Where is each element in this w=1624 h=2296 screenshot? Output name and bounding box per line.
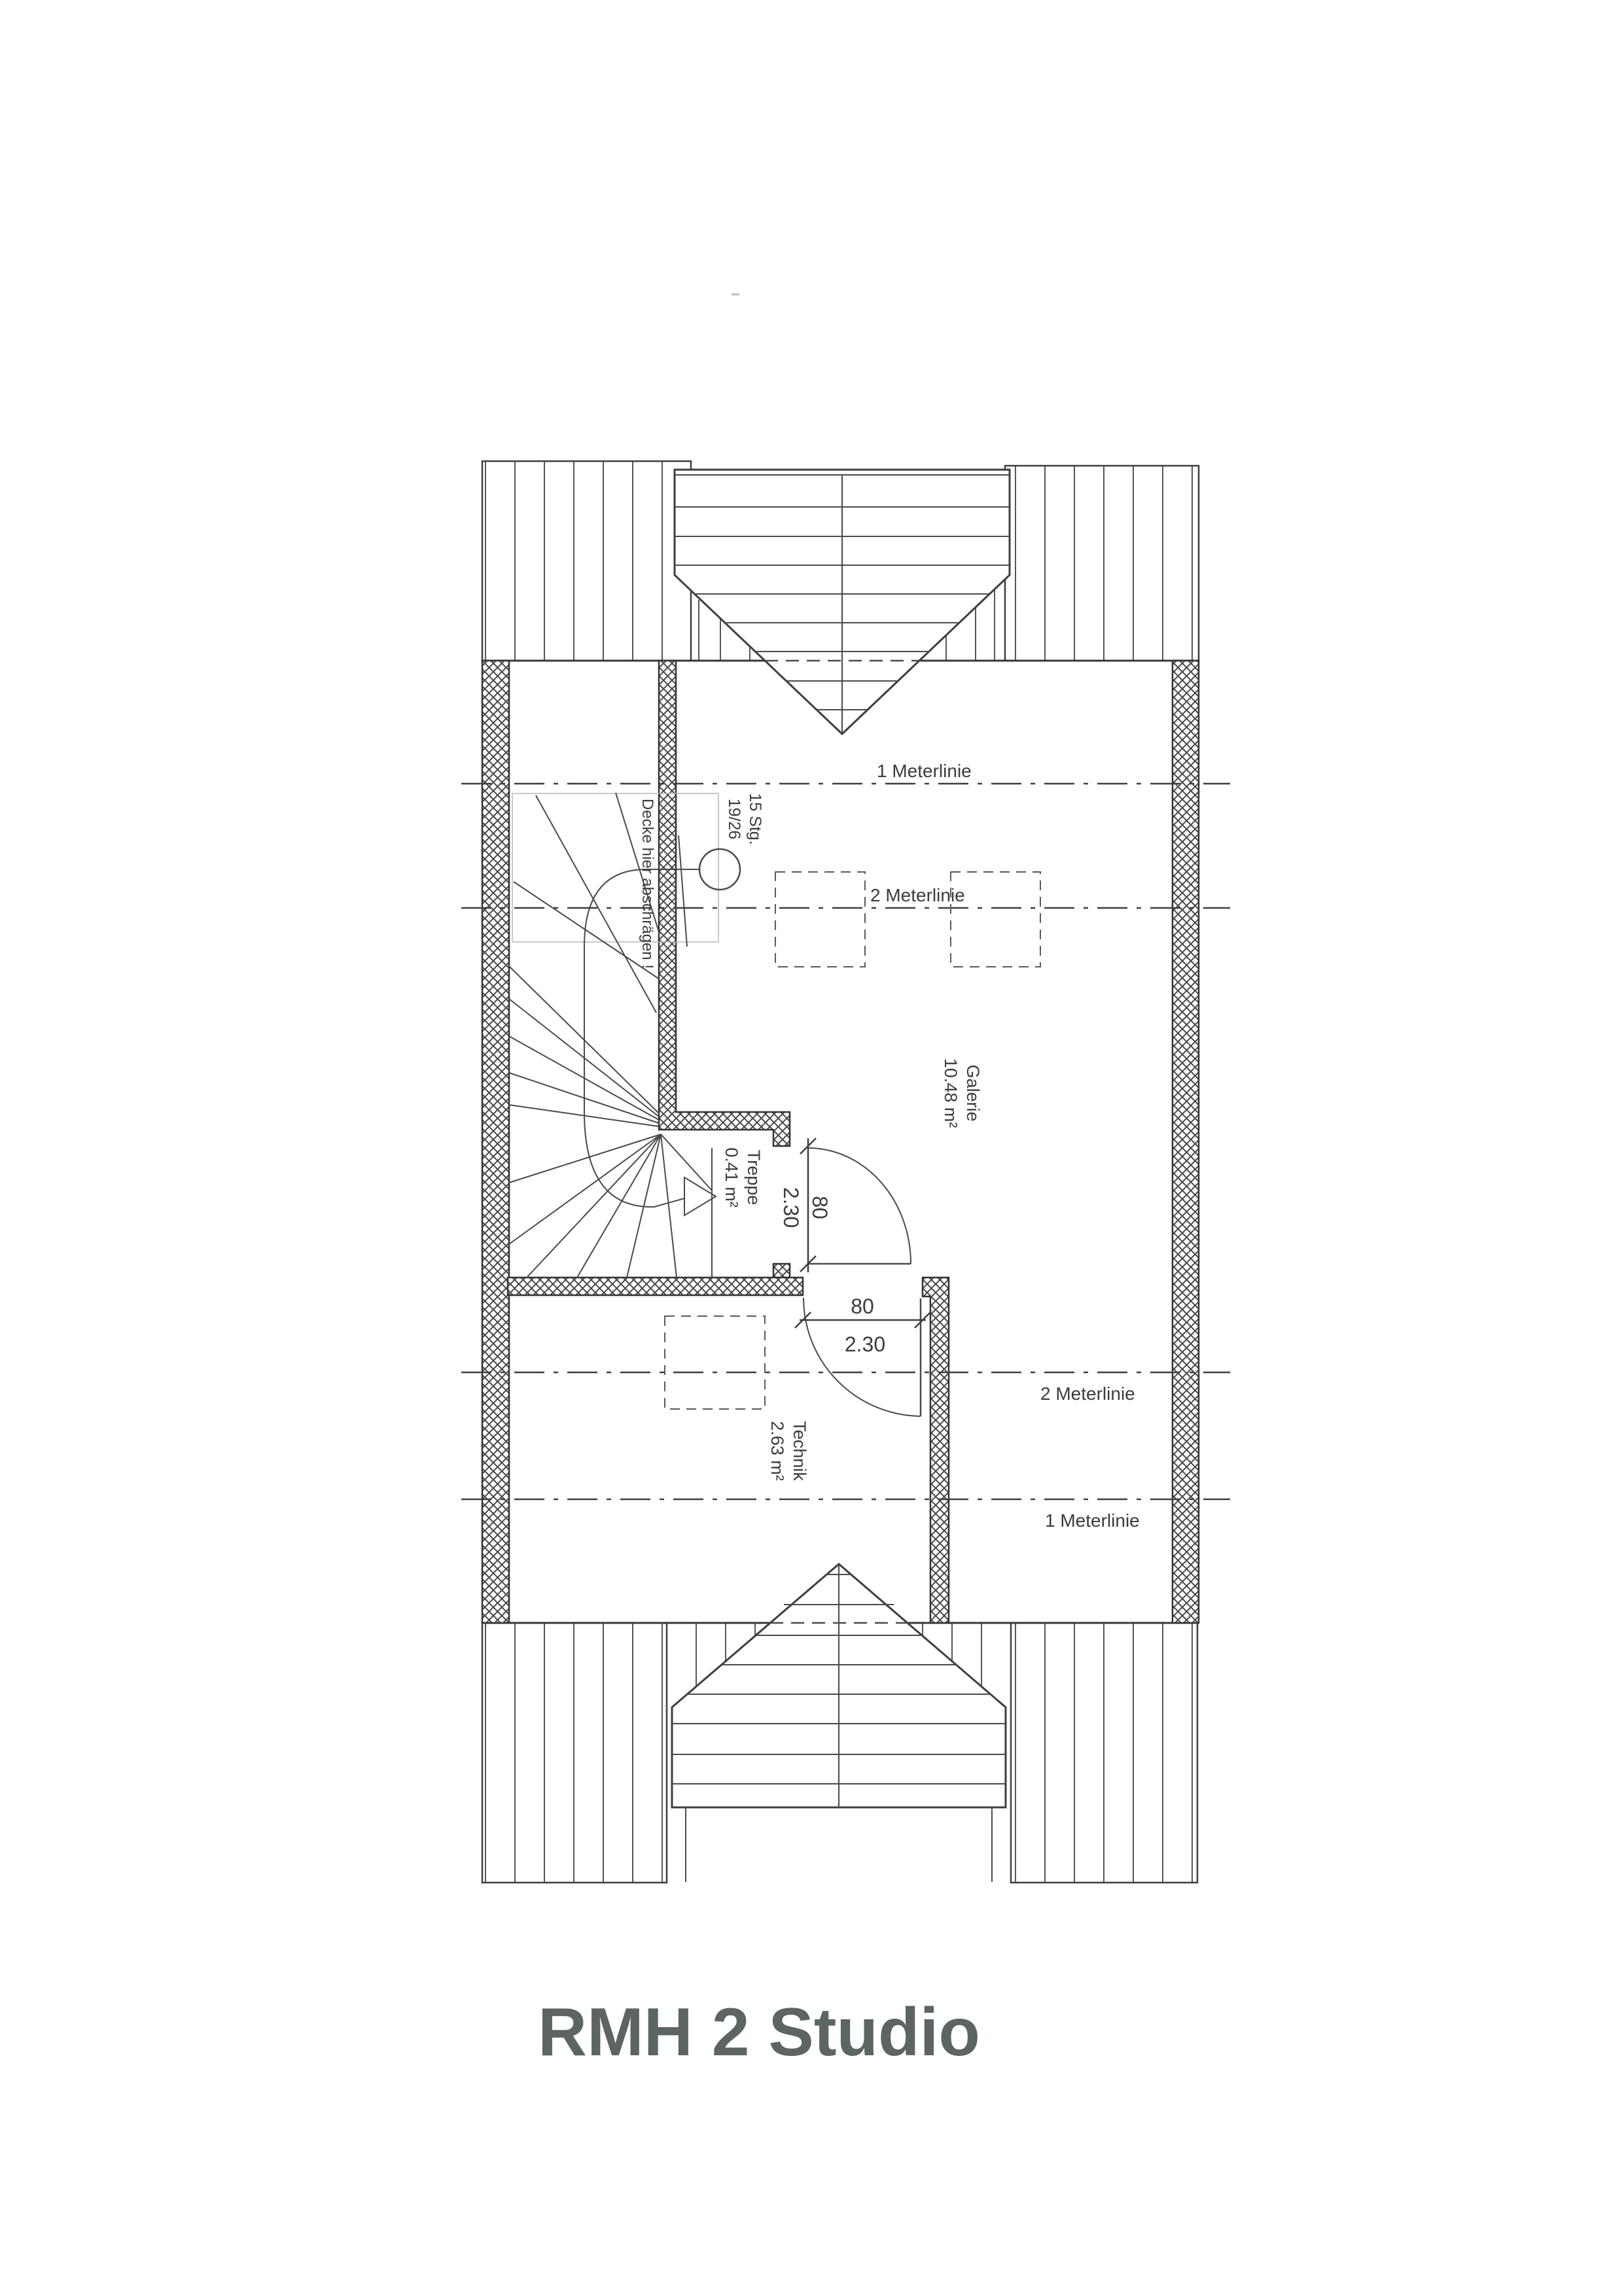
- walking-line-arrow: [684, 1177, 716, 1215]
- stair-opening-outline: [512, 793, 718, 942]
- wall-exterior-left: [482, 661, 509, 1623]
- skylight-galerie-left: [775, 872, 865, 967]
- door-upper-width: 80: [808, 1196, 832, 1219]
- skylight-technik: [665, 1316, 765, 1409]
- page-title: RMH 2 Studio: [538, 1994, 980, 2070]
- stair-treads: [509, 793, 712, 1278]
- stair-spec: 15 Stg. 19/26: [725, 793, 764, 844]
- dormer-bottom-lines: [672, 1564, 1006, 1882]
- door-lower-height: 2.30: [845, 1332, 885, 1356]
- wall-door-jamb-stub: [773, 1264, 790, 1278]
- dormer-top: [675, 470, 1010, 734]
- walking-line-start-circle: [699, 849, 740, 890]
- technik-area: 2.63 m²: [768, 1421, 787, 1481]
- treppe-area: 0.41 m²: [722, 1147, 741, 1208]
- door-upper-height: 2.30: [779, 1187, 803, 1228]
- stair-steps: 15 Stg.: [746, 793, 764, 844]
- stair-rise-run: 19/26: [725, 799, 743, 840]
- door-upper-dimension-text: 80 2.30: [779, 1187, 832, 1228]
- meterline-1-bottom-label: 1 Meterlinie: [1045, 1510, 1140, 1531]
- door-upper: 80 2.30: [779, 1138, 911, 1272]
- room-label-treppe: Treppe 0.41 m²: [722, 1147, 764, 1208]
- roof-panel-bottom-left: [482, 1623, 667, 1883]
- treppe-name: Treppe: [744, 1150, 764, 1206]
- ceiling-note-text: Decke hier abschrägen !: [639, 799, 656, 969]
- wall-technik-partition: [923, 1278, 949, 1623]
- roof-panel-bottom-right: [1011, 1623, 1197, 1883]
- roof-panel-top-right: [1005, 466, 1199, 661]
- meterline-2-bottom-label: 2 Meterlinie: [1040, 1383, 1135, 1404]
- galerie-name: Galerie: [963, 1064, 983, 1121]
- door-lower-width: 80: [851, 1295, 874, 1318]
- wall-exterior-right: [1173, 661, 1199, 1623]
- walls: [482, 661, 1199, 1623]
- technik-name: Technik: [790, 1421, 809, 1481]
- wall-stair-bottom: [508, 1278, 803, 1295]
- scan-artifact: [732, 293, 739, 296]
- stair: [509, 793, 740, 1278]
- skylights: [665, 872, 1040, 1409]
- roof-panel-top-left: [482, 461, 691, 661]
- floor-plan-page: 80 2.30 80 2.30 1 Meterlinie 2 Meterlini…: [0, 0, 1624, 2296]
- meterline-1-top-label: 1 Meterlinie: [877, 761, 972, 781]
- room-label-galerie: Galerie 10.48 m²: [941, 1058, 983, 1128]
- galerie-area: 10.48 m²: [941, 1058, 961, 1128]
- ceiling-note: Decke hier abschrägen !: [639, 799, 656, 969]
- dormer-bottom: [672, 1564, 1006, 1882]
- floor-plan-drawing: 80 2.30 80 2.30 1 Meterlinie 2 Meterlini…: [0, 0, 1624, 2296]
- wall-stair-partition: [659, 661, 790, 1146]
- room-label-technik: Technik 2.63 m²: [768, 1421, 809, 1481]
- door-lower: 80 2.30: [795, 1295, 930, 1416]
